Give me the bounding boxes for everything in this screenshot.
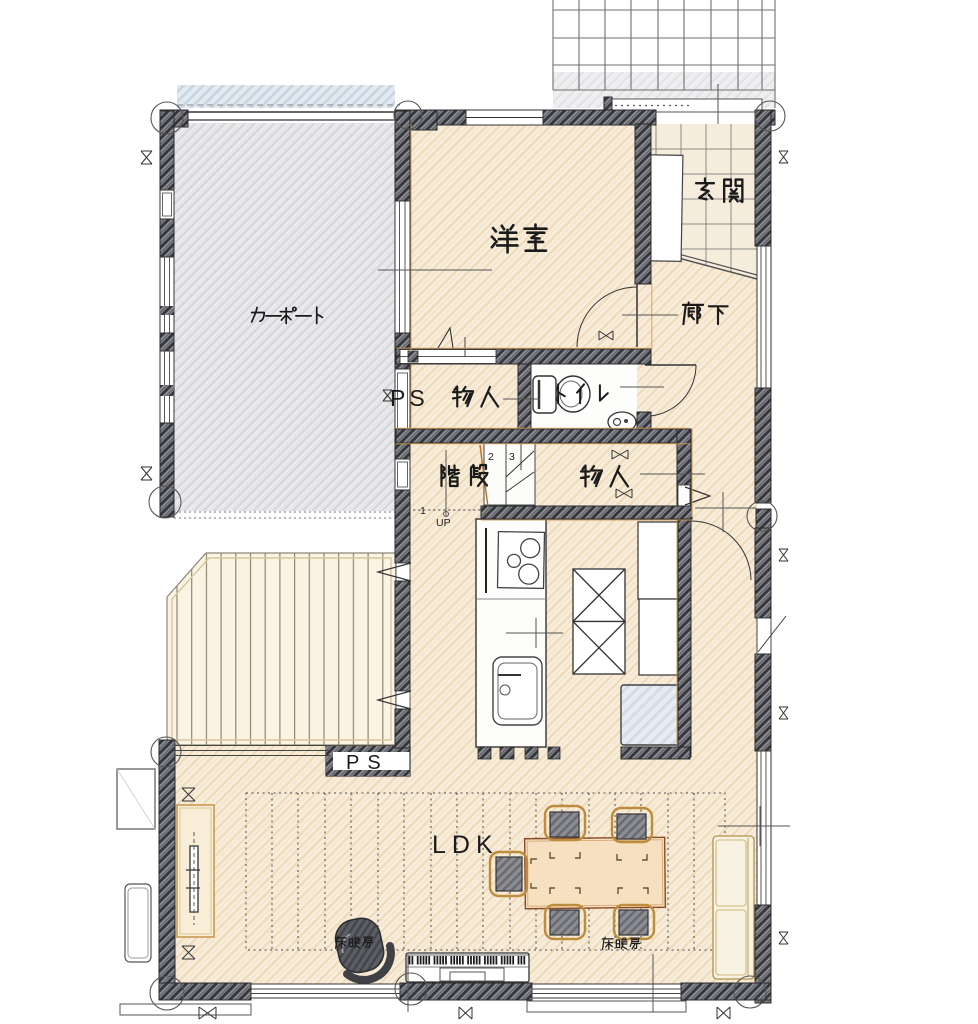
svg-text:1: 1 — [420, 505, 426, 517]
svg-text:UP: UP — [436, 517, 451, 529]
svg-text:3: 3 — [509, 451, 515, 463]
svg-text:PS: PS — [346, 752, 389, 774]
svg-text:LDK: LDK — [432, 831, 499, 859]
svg-text:2: 2 — [488, 451, 494, 463]
svg-text:PS: PS — [390, 385, 429, 411]
